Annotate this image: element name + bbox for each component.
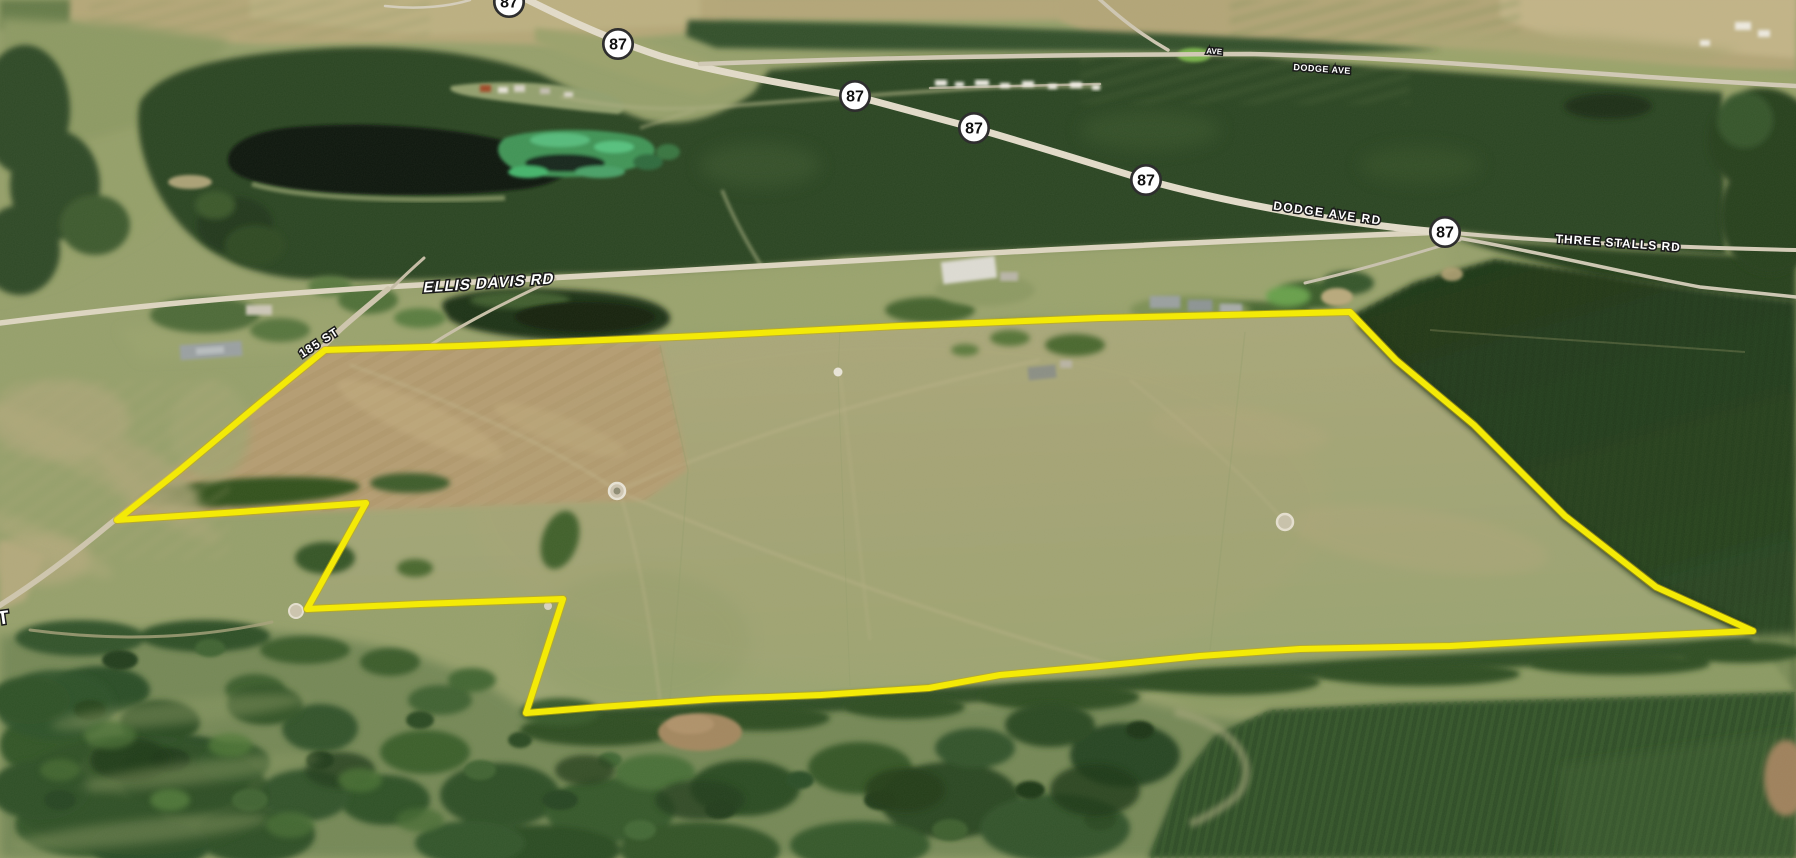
svg-text:87: 87 (1436, 225, 1454, 242)
svg-text:87: 87 (1137, 173, 1155, 190)
svg-text:87: 87 (500, 0, 518, 12)
svg-text:AVE: AVE (1206, 46, 1223, 56)
svg-text:87: 87 (609, 37, 627, 54)
svg-text:87: 87 (965, 121, 983, 138)
svg-text:87: 87 (846, 89, 864, 106)
